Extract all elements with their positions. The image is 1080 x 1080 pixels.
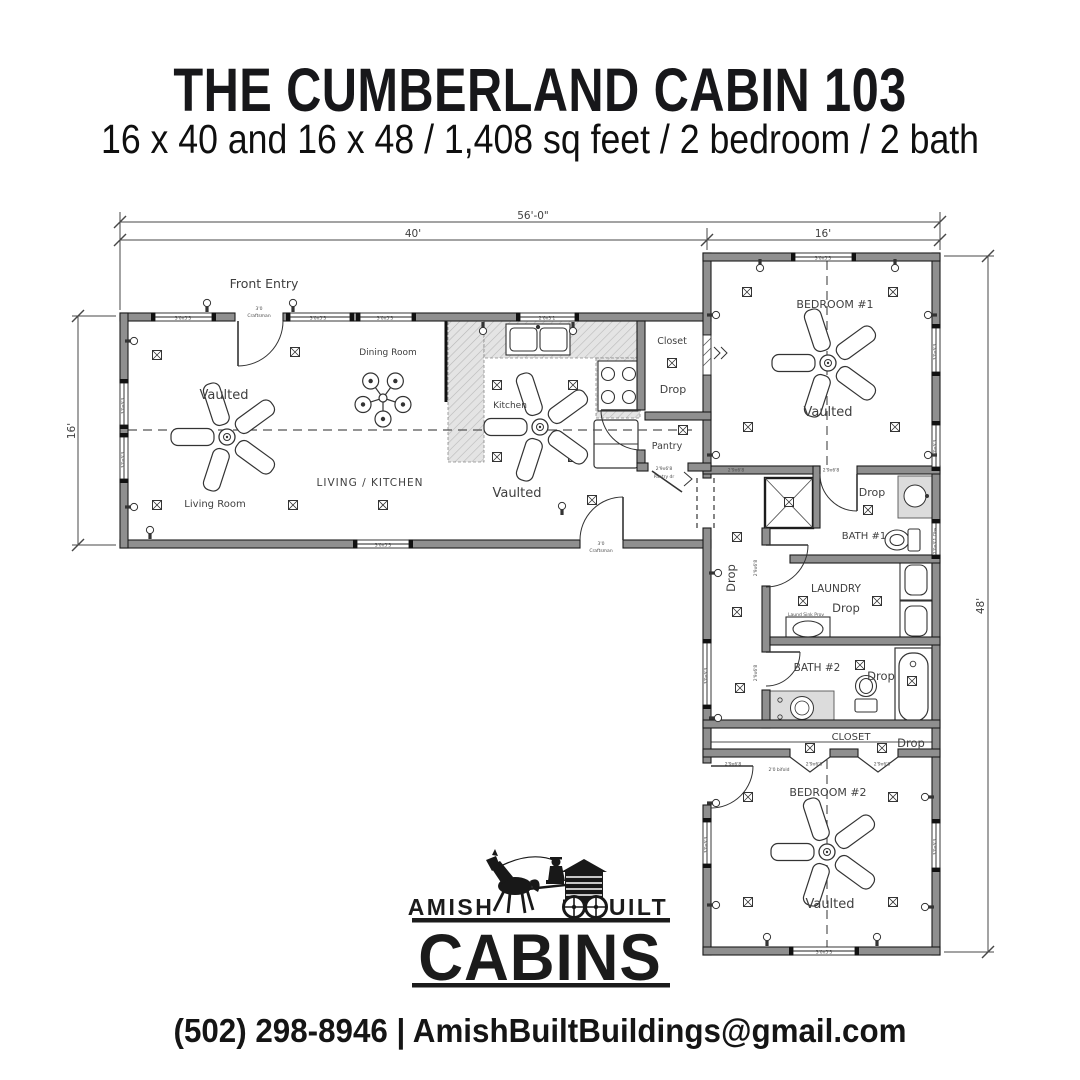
size-annotation: 3'0x5'3 [816, 950, 833, 956]
room-label: Living Room [184, 499, 245, 510]
junction-box-icon [744, 898, 753, 907]
size-annotation: Pantry dr [654, 474, 675, 480]
size-annotation: Laund Sink Prov [788, 612, 824, 618]
size-annotation: 3'0 [256, 306, 263, 312]
junction-box-icon [733, 533, 742, 542]
size-annotation: 2'9x6'8 [725, 762, 742, 768]
wall-light-icon [763, 933, 770, 946]
stove-icon [598, 361, 638, 411]
room-label: Drop [660, 383, 686, 396]
junction-box-icon [891, 423, 900, 432]
junction-box-icon [856, 661, 865, 670]
page-title: THE CUMBERLAND CABIN 103 [173, 56, 906, 124]
size-annotation: Craftsman [589, 548, 613, 554]
header: THE CUMBERLAND CABIN 103 16 x 40 and 16 … [101, 56, 979, 163]
page-subtitle: 16 x 40 and 16 x 48 / 1,408 sq feet / 2 … [101, 117, 979, 163]
brand-logo: AMISH BUILT [408, 849, 670, 994]
junction-box-icon [743, 288, 752, 297]
dimension-label: 16' [815, 228, 831, 240]
room-label: Drop [897, 736, 925, 750]
room-label: LAUNDRY [811, 583, 862, 595]
junction-box-icon [736, 684, 745, 693]
refrigerator-icon [594, 420, 638, 468]
junction-box-icon [873, 597, 882, 606]
size-annotation: 2'0 bifold [769, 767, 790, 773]
size-annotation: 2'9x6'8 [753, 560, 759, 577]
size-annotation: 3'0x5'3 [121, 398, 127, 415]
junction-box-icon [379, 501, 388, 510]
size-annotation: 2'9x6'8 [823, 468, 840, 474]
junction-box-icon [153, 501, 162, 510]
size-annotation: 2'9x6'8 [656, 466, 673, 472]
size-annotation: Craftsman [247, 313, 271, 319]
size-annotation: 3'0x5'3 [377, 316, 394, 322]
module-joint-dashes [697, 478, 714, 528]
laundry-door [766, 545, 808, 587]
size-annotation: 2'6x3'1 [539, 316, 556, 322]
bathtub-icon [895, 648, 932, 726]
size-annotation: 3'0x5'3 [375, 543, 392, 549]
size-annotation: 2'9x6'8 [874, 762, 891, 768]
ceiling-fan-icon [771, 796, 877, 908]
dimension-label: 40' [405, 228, 421, 240]
wall-light-icon [558, 502, 565, 515]
junction-box-icon [889, 288, 898, 297]
size-annotation: 3'0x5'3 [933, 440, 939, 457]
junction-box-icon [889, 793, 898, 802]
horse-drawn-log-cabin-wagon-icon [486, 849, 607, 918]
fans-layer [171, 307, 878, 908]
washer-dryer-icon [900, 560, 932, 641]
room-label: Dining Room [359, 348, 417, 358]
room-label: Vaulted [199, 388, 248, 403]
junction-box-icon [744, 793, 753, 802]
front-entry-door [238, 321, 283, 366]
junction-box-icon [889, 898, 898, 907]
junction-box-icon [588, 496, 597, 505]
room-label: LIVING / KITCHEN [317, 477, 424, 489]
room-label: BATH #2 [794, 662, 841, 674]
footer-contact: (502) 298-8946 | AmishBuiltBuildings@gma… [174, 1012, 907, 1049]
size-annotation: 3'0x5'3 [175, 316, 192, 322]
dimension-label: 48' [975, 598, 987, 614]
kitchen-sink [506, 324, 570, 355]
doors [238, 321, 898, 808]
size-annotation: 3'0x5'3 [121, 452, 127, 469]
junction-box-icon [291, 348, 300, 357]
junction-box-icon [569, 381, 578, 390]
poster: THE CUMBERLAND CABIN 103 16 x 40 and 16 … [0, 0, 1080, 1080]
room-label: Closet [657, 336, 687, 347]
junction-box-icon [908, 677, 917, 686]
wall-light-icon [289, 299, 296, 312]
logo-word-amish: AMISH [408, 894, 495, 920]
bath1-toilet-icon [885, 529, 920, 551]
junction-box-icon [153, 351, 162, 360]
size-annotation: 3'0x5'3 [815, 256, 832, 262]
bath1-door [820, 474, 857, 511]
junction-box-icon [289, 501, 298, 510]
room-label: BATH #1 [842, 531, 886, 542]
room-label: BEDROOM #2 [789, 786, 866, 799]
size-annotation: 2'9x6'8 [728, 468, 745, 474]
size-annotation: 3'0x5'3 [933, 344, 939, 361]
size-annotation: 2'9x6'8 [806, 762, 823, 768]
room-label: Drop [867, 669, 895, 683]
junction-box-icon [733, 608, 742, 617]
junction-box-icon [493, 453, 502, 462]
wall-light-icon [873, 933, 880, 946]
junction-box-icon [744, 423, 753, 432]
room-label: Kitchen [493, 401, 527, 411]
rear-door [580, 497, 623, 540]
room-label: BEDROOM #1 [796, 298, 873, 311]
junction-box-icon [668, 359, 677, 368]
room-label: Front Entry [230, 276, 299, 291]
room-label: Pantry [652, 441, 683, 452]
room-label: Drop [832, 601, 860, 615]
junction-box-icon [785, 498, 794, 507]
junction-box-icon [679, 426, 688, 435]
junction-box-icon [493, 381, 502, 390]
junction-box-icon [878, 744, 887, 753]
logo-bar-bottom [412, 983, 670, 988]
size-annotation: 3'0x5'3 [310, 316, 327, 322]
size-annotation: 3'0x5'3 [933, 839, 939, 856]
dimension-label: 16' [66, 423, 78, 439]
dimension-label: 56'-0" [517, 210, 549, 222]
room-label: Vaulted [492, 486, 541, 501]
wall-light-icon [203, 299, 210, 312]
size-annotation: 3'0 [598, 541, 605, 547]
floor-plan: Front EntryDining RoomVaultedLiving Room… [66, 210, 994, 958]
room-label: Drop [859, 486, 885, 499]
size-annotation: 2'0x3'1 Obs [933, 527, 939, 554]
junction-box-icon [799, 597, 808, 606]
room-label: Vaulted [805, 897, 854, 912]
junction-box-icon [806, 744, 815, 753]
wall-light-icon [146, 526, 153, 539]
junction-box-icon [864, 506, 873, 515]
cased-opening [703, 335, 727, 375]
bath1-vanity [898, 476, 932, 518]
page: THE CUMBERLAND CABIN 103 16 x 40 and 16 … [0, 0, 1080, 1080]
room-label: Drop [724, 564, 738, 592]
room-label: CLOSET [832, 732, 872, 743]
ceiling-fan-icon [772, 307, 878, 419]
size-annotation: 3'0x5'3 [704, 668, 710, 685]
dining-light-icon [355, 373, 411, 427]
size-annotation: 2'9x6'8 [753, 665, 759, 682]
room-label: Vaulted [803, 405, 852, 420]
size-annotation: 3'0x5'3 [704, 837, 710, 854]
